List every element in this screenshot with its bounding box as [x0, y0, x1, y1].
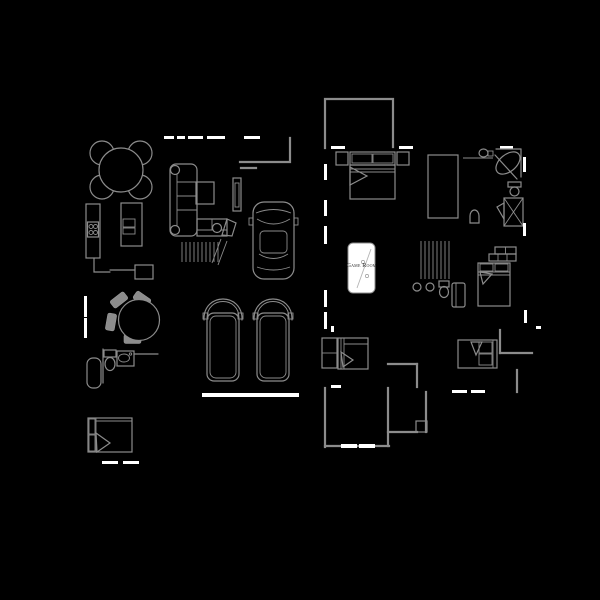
- tv-console-inner: [235, 183, 239, 207]
- car-windshield-arc: [257, 302, 289, 319]
- window-segment: [523, 223, 526, 236]
- knob-icon: [426, 283, 434, 291]
- master-bedroom: [325, 99, 413, 199]
- window-segment: [84, 318, 87, 338]
- window-segment: [244, 136, 260, 139]
- car-body: [207, 313, 239, 381]
- bathtub: [87, 358, 101, 388]
- window-segment: [523, 157, 526, 172]
- counter-return: [94, 258, 110, 272]
- bedroom-bottom-right: [452, 326, 541, 393]
- window-segment: [471, 390, 485, 393]
- burner-icon: [89, 231, 93, 235]
- pillow: [89, 419, 95, 434]
- car-hood-arc: [204, 299, 242, 320]
- game-room: Game Room: [347, 243, 377, 293]
- sofa-end-table: [213, 224, 222, 233]
- wall-shelf: [489, 254, 516, 261]
- sofa-armrest: [222, 219, 236, 236]
- window-segment: [102, 461, 118, 464]
- bedroom-bottom-left: [88, 418, 139, 464]
- car-body-inner: [260, 316, 286, 378]
- island-sink-icon: [123, 219, 135, 227]
- island-sink-icon: [123, 228, 135, 234]
- blanket-fold: [480, 272, 492, 284]
- breakfast-nook: [90, 141, 152, 199]
- sink-icon: [479, 149, 488, 157]
- stool-icon: [470, 210, 479, 223]
- blanket-fold: [341, 352, 353, 367]
- floor-plan-drawing: Game Room: [0, 0, 600, 600]
- tub-apron: [495, 155, 517, 179]
- toilet-tank: [508, 182, 521, 187]
- car-windshield: [257, 219, 290, 224]
- game-room-label: Game Room: [347, 263, 377, 269]
- kitchen: [86, 203, 153, 279]
- wall-dash: [331, 326, 334, 332]
- window-segment: [331, 385, 341, 388]
- toilet-bowl: [105, 358, 115, 371]
- wall-corner: [240, 138, 290, 162]
- sofa-end-table: [171, 166, 180, 175]
- dining-table: [119, 300, 160, 341]
- breakfast-table: [99, 148, 143, 192]
- knob-icon: [413, 283, 421, 291]
- car-body-inner: [210, 316, 236, 378]
- window-segment: [188, 136, 203, 139]
- exterior-windows-top: [164, 136, 260, 139]
- bedroom-right: [478, 247, 527, 323]
- pillow: [479, 354, 492, 365]
- coffee-table: [196, 182, 214, 204]
- garage-door: [202, 393, 299, 397]
- pillow: [352, 154, 372, 163]
- sink-icon: [119, 354, 130, 362]
- car-body: [257, 313, 289, 381]
- car-roof: [260, 231, 287, 253]
- car-trunk-line: [257, 267, 290, 270]
- wall-dash: [324, 164, 327, 180]
- pillow: [373, 154, 393, 163]
- staircase: [182, 239, 227, 265]
- nightstand: [397, 152, 409, 165]
- living-room: [170, 164, 241, 236]
- car-hood-line: [256, 210, 291, 214]
- door-segment: [399, 146, 413, 149]
- walk-in-closet: [428, 155, 458, 218]
- door-leaf: [452, 283, 465, 307]
- car-windshield-arc: [207, 302, 239, 319]
- wall-dash: [324, 226, 327, 244]
- pillow: [495, 264, 508, 271]
- wall-dash: [324, 312, 327, 329]
- bedroom-middle: [322, 326, 368, 369]
- wall-dash: [324, 290, 327, 307]
- billiard-ball: [365, 274, 368, 277]
- sink-faucet: [129, 353, 131, 355]
- corner-bathtub: [492, 147, 524, 178]
- nightstand: [336, 152, 348, 165]
- blanket-fold: [350, 167, 367, 185]
- toilet-bowl: [510, 187, 519, 196]
- master-bathroom: [463, 146, 526, 236]
- sofa-end-table: [171, 226, 180, 235]
- window-segment: [123, 461, 139, 464]
- interior-dashed-wall: [324, 164, 327, 329]
- window-segment: [341, 444, 357, 448]
- window-segment: [536, 326, 541, 329]
- dining-chair: [105, 313, 117, 331]
- pillow: [89, 435, 95, 451]
- entry-walls: [240, 138, 290, 168]
- garage: [202, 299, 299, 397]
- window-segment: [452, 390, 467, 393]
- door-segment: [331, 146, 345, 149]
- cooktop-icon: [88, 222, 99, 237]
- burner-icon: [94, 231, 98, 235]
- window-segment: [164, 136, 174, 139]
- window-segment: [177, 136, 185, 139]
- sink-faucet: [488, 151, 493, 156]
- floor-plan-canvas: Game Room: [0, 0, 600, 600]
- blanket-fold: [96, 433, 110, 452]
- car-hood-arc: [254, 299, 292, 320]
- toilet-tank: [104, 350, 116, 357]
- car-rear-window: [259, 254, 288, 259]
- pillow: [480, 264, 493, 271]
- window-segment: [207, 136, 225, 139]
- shower-door: [497, 203, 504, 219]
- bedroom-walls: [325, 99, 393, 148]
- burner-icon: [89, 225, 93, 229]
- garage-car-right: [253, 299, 293, 381]
- wall-dash: [324, 200, 327, 216]
- family-room-walls: [325, 364, 427, 448]
- closet-hangers: [413, 241, 465, 307]
- kitchen-desk: [135, 265, 153, 279]
- closet-outline: [428, 155, 458, 218]
- window-segment: [359, 444, 375, 448]
- window-segment: [524, 310, 527, 323]
- hall-bathroom: [87, 349, 158, 388]
- window-segment: [84, 296, 87, 317]
- toilet-bowl: [440, 287, 449, 298]
- burner-icon: [94, 225, 98, 229]
- kitchen-island: [121, 203, 142, 246]
- driveway-car: [249, 202, 298, 279]
- garage-car-left: [203, 299, 243, 381]
- dining-room: [84, 290, 160, 343]
